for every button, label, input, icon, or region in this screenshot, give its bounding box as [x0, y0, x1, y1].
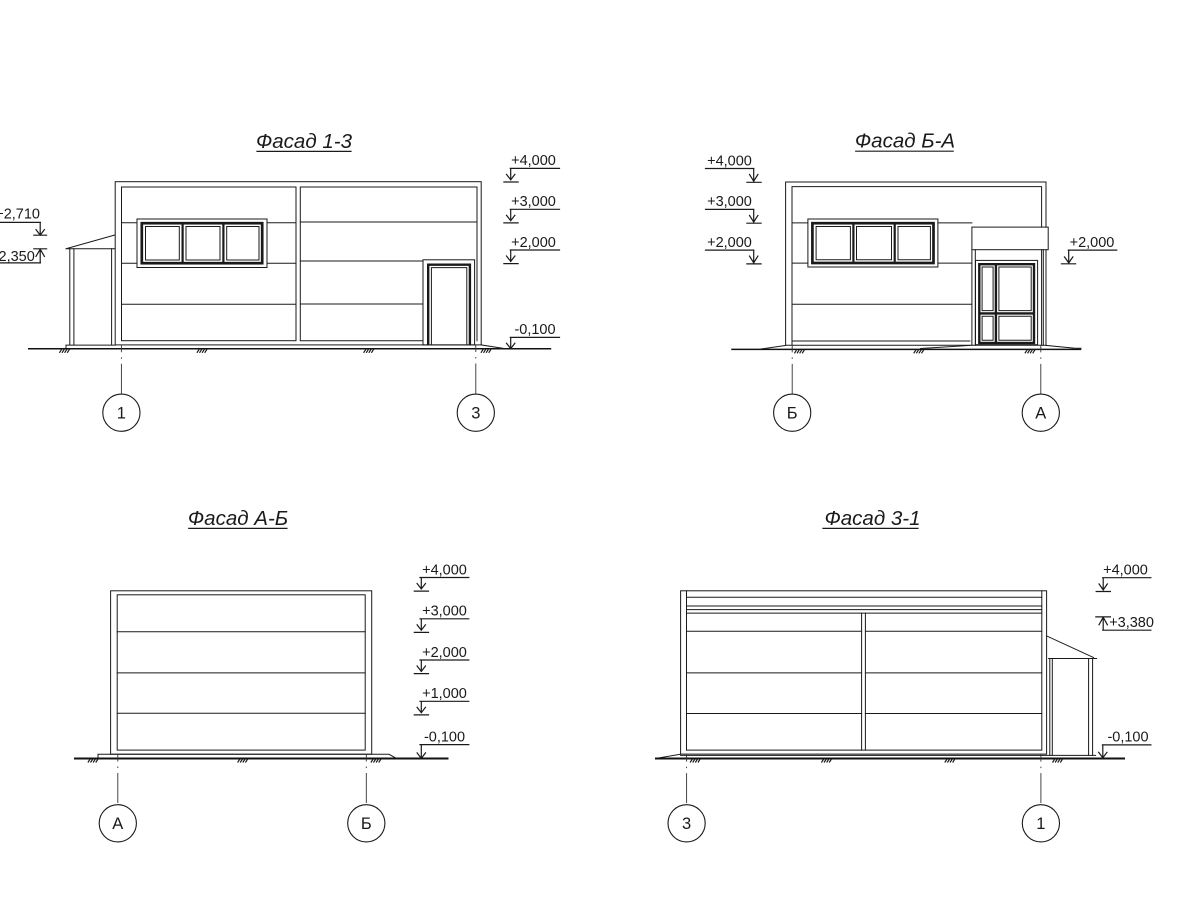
svg-text:+2,000: +2,000 — [1070, 235, 1115, 251]
svg-text:-0,100: -0,100 — [514, 322, 555, 338]
svg-text:А: А — [1035, 405, 1046, 423]
svg-text:-0,100: -0,100 — [424, 729, 465, 745]
svg-text:+3,000: +3,000 — [422, 604, 467, 620]
svg-text:+4,000: +4,000 — [1103, 563, 1148, 579]
svg-text:Б: Б — [361, 815, 372, 833]
svg-text:3: 3 — [471, 405, 480, 423]
svg-text:Фасад А-Б: Фасад А-Б — [188, 507, 288, 530]
svg-text:+2,000: +2,000 — [707, 235, 752, 251]
svg-text:+4,000: +4,000 — [511, 153, 556, 169]
svg-text:1: 1 — [1036, 815, 1045, 833]
svg-text:3: 3 — [682, 815, 691, 833]
svg-text:+3,000: +3,000 — [707, 194, 752, 210]
svg-text:Фасад 1-3: Фасад 1-3 — [256, 130, 353, 153]
svg-text:Фасад 3-1: Фасад 3-1 — [824, 507, 920, 530]
svg-text:+1,000: +1,000 — [422, 686, 467, 702]
svg-text:+3,000: +3,000 — [511, 194, 556, 210]
svg-text:+4,000: +4,000 — [707, 153, 752, 169]
svg-text:+4,000: +4,000 — [422, 562, 467, 578]
svg-text:+2,710: +2,710 — [0, 207, 40, 223]
svg-text:+2,000: +2,000 — [511, 235, 556, 251]
svg-text:+3,380: +3,380 — [1109, 615, 1154, 631]
svg-text:1: 1 — [117, 405, 126, 423]
svg-text:+2,000: +2,000 — [422, 645, 467, 661]
svg-text:Фасад Б-А: Фасад Б-А — [855, 130, 955, 153]
svg-text:Б: Б — [787, 405, 798, 423]
svg-text:-0,100: -0,100 — [1107, 730, 1148, 746]
svg-text:А: А — [112, 815, 123, 833]
